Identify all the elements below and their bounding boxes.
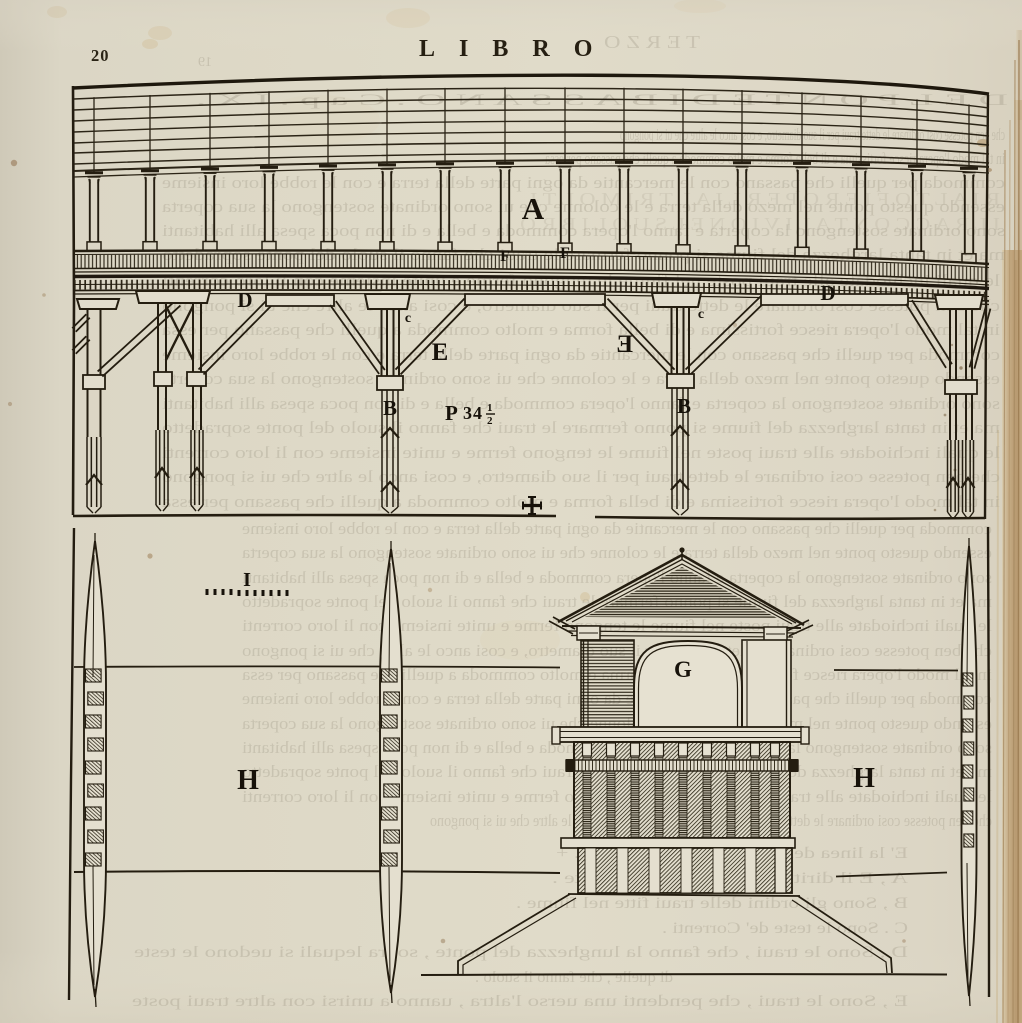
- svg-text:c: c: [405, 311, 411, 326]
- svg-text:commoda per quelli che passano: commoda per quelli che passano con le me…: [242, 519, 992, 538]
- svg-text:in tal modo l'opera riesce for: in tal modo l'opera riesce fortissima e …: [161, 492, 1000, 511]
- svg-text:E: E: [616, 331, 633, 358]
- svg-text:commoda per quelli che passano: commoda per quelli che passano con le me…: [162, 345, 1000, 364]
- svg-text:ma et in tanta larghezza del f: ma et in tanta larghezza del fiume si po…: [162, 418, 1000, 437]
- svg-text:essendo questo ponte nel mezo: essendo questo ponte nel mezo della terr…: [161, 369, 1000, 388]
- svg-text:essendo questo ponte nel mezo: essendo questo ponte nel mezo della terr…: [241, 543, 992, 562]
- svg-text:19: 19: [198, 55, 212, 70]
- svg-text:le quali inchiodate alle traui: le quali inchiodate alle traui poste nel…: [161, 443, 1000, 462]
- svg-text:T E R Z O: T E R Z O: [604, 32, 700, 52]
- svg-text:P: P: [445, 401, 458, 425]
- svg-text:H: H: [237, 765, 259, 796]
- svg-text:B: B: [677, 394, 691, 418]
- svg-text:C . Sono le teste de' Corren: C . Sono le teste de' Correnti .: [662, 920, 908, 937]
- svg-text:34: 34: [463, 403, 483, 423]
- svg-text:D: D: [820, 281, 835, 305]
- svg-text:F: F: [560, 245, 570, 262]
- svg-text:R I A L T O F I E R O P E R: R I A L T O F I E R O P E R L I A L T R …: [530, 189, 1000, 209]
- svg-text:sono ordinate sostengono la co: sono ordinate sostengono la coperta e fa…: [242, 568, 992, 587]
- svg-text:D E L P O N T E D I B A: D E L P O N T E D I B A S S A N O . C a …: [196, 92, 1008, 109]
- svg-text:H: H: [853, 763, 875, 794]
- svg-text:G: G: [674, 657, 692, 682]
- svg-text:E: E: [432, 339, 449, 366]
- svg-text:di quelle , che fanno il suolo: di quelle , che fanno il suolo .: [475, 969, 673, 986]
- svg-text:E , Sono le traui , che pende: E , Sono le traui , che pendenti una uer…: [132, 993, 908, 1010]
- svg-text:LIBRO: LIBRO: [419, 36, 616, 62]
- svg-text:I L R A C C O N T A L I V I: I L R A C C O N T A L I V I O N E L S U …: [520, 214, 1000, 234]
- svg-text:1: 1: [487, 402, 493, 414]
- svg-text:sono ordinate sostengono la co: sono ordinate sostengono la coperta e fa…: [161, 394, 1000, 413]
- svg-text:che ben potesse cosi ordinare: che ben potesse cosi ordinare le dette t…: [162, 467, 1000, 486]
- svg-text:D: D: [237, 288, 252, 312]
- svg-text:c: c: [698, 307, 704, 322]
- svg-text:I: I: [243, 569, 251, 591]
- svg-text:D , Sono le traui , che fanno: D , Sono le traui , che fanno la lunghez…: [134, 944, 908, 961]
- svg-text:2: 2: [487, 415, 493, 427]
- svg-text:B: B: [383, 396, 397, 420]
- svg-text:in tal modo l'opera riesce for: in tal modo l'opera riesce fortissima e …: [161, 320, 1000, 339]
- svg-text:20: 20: [91, 46, 110, 65]
- svg-text:A: A: [522, 191, 545, 226]
- svg-text:B , Sono gli ordini delle tr: B , Sono gli ordini delle traui fitte ne…: [516, 895, 908, 912]
- svg-text:F: F: [500, 248, 510, 265]
